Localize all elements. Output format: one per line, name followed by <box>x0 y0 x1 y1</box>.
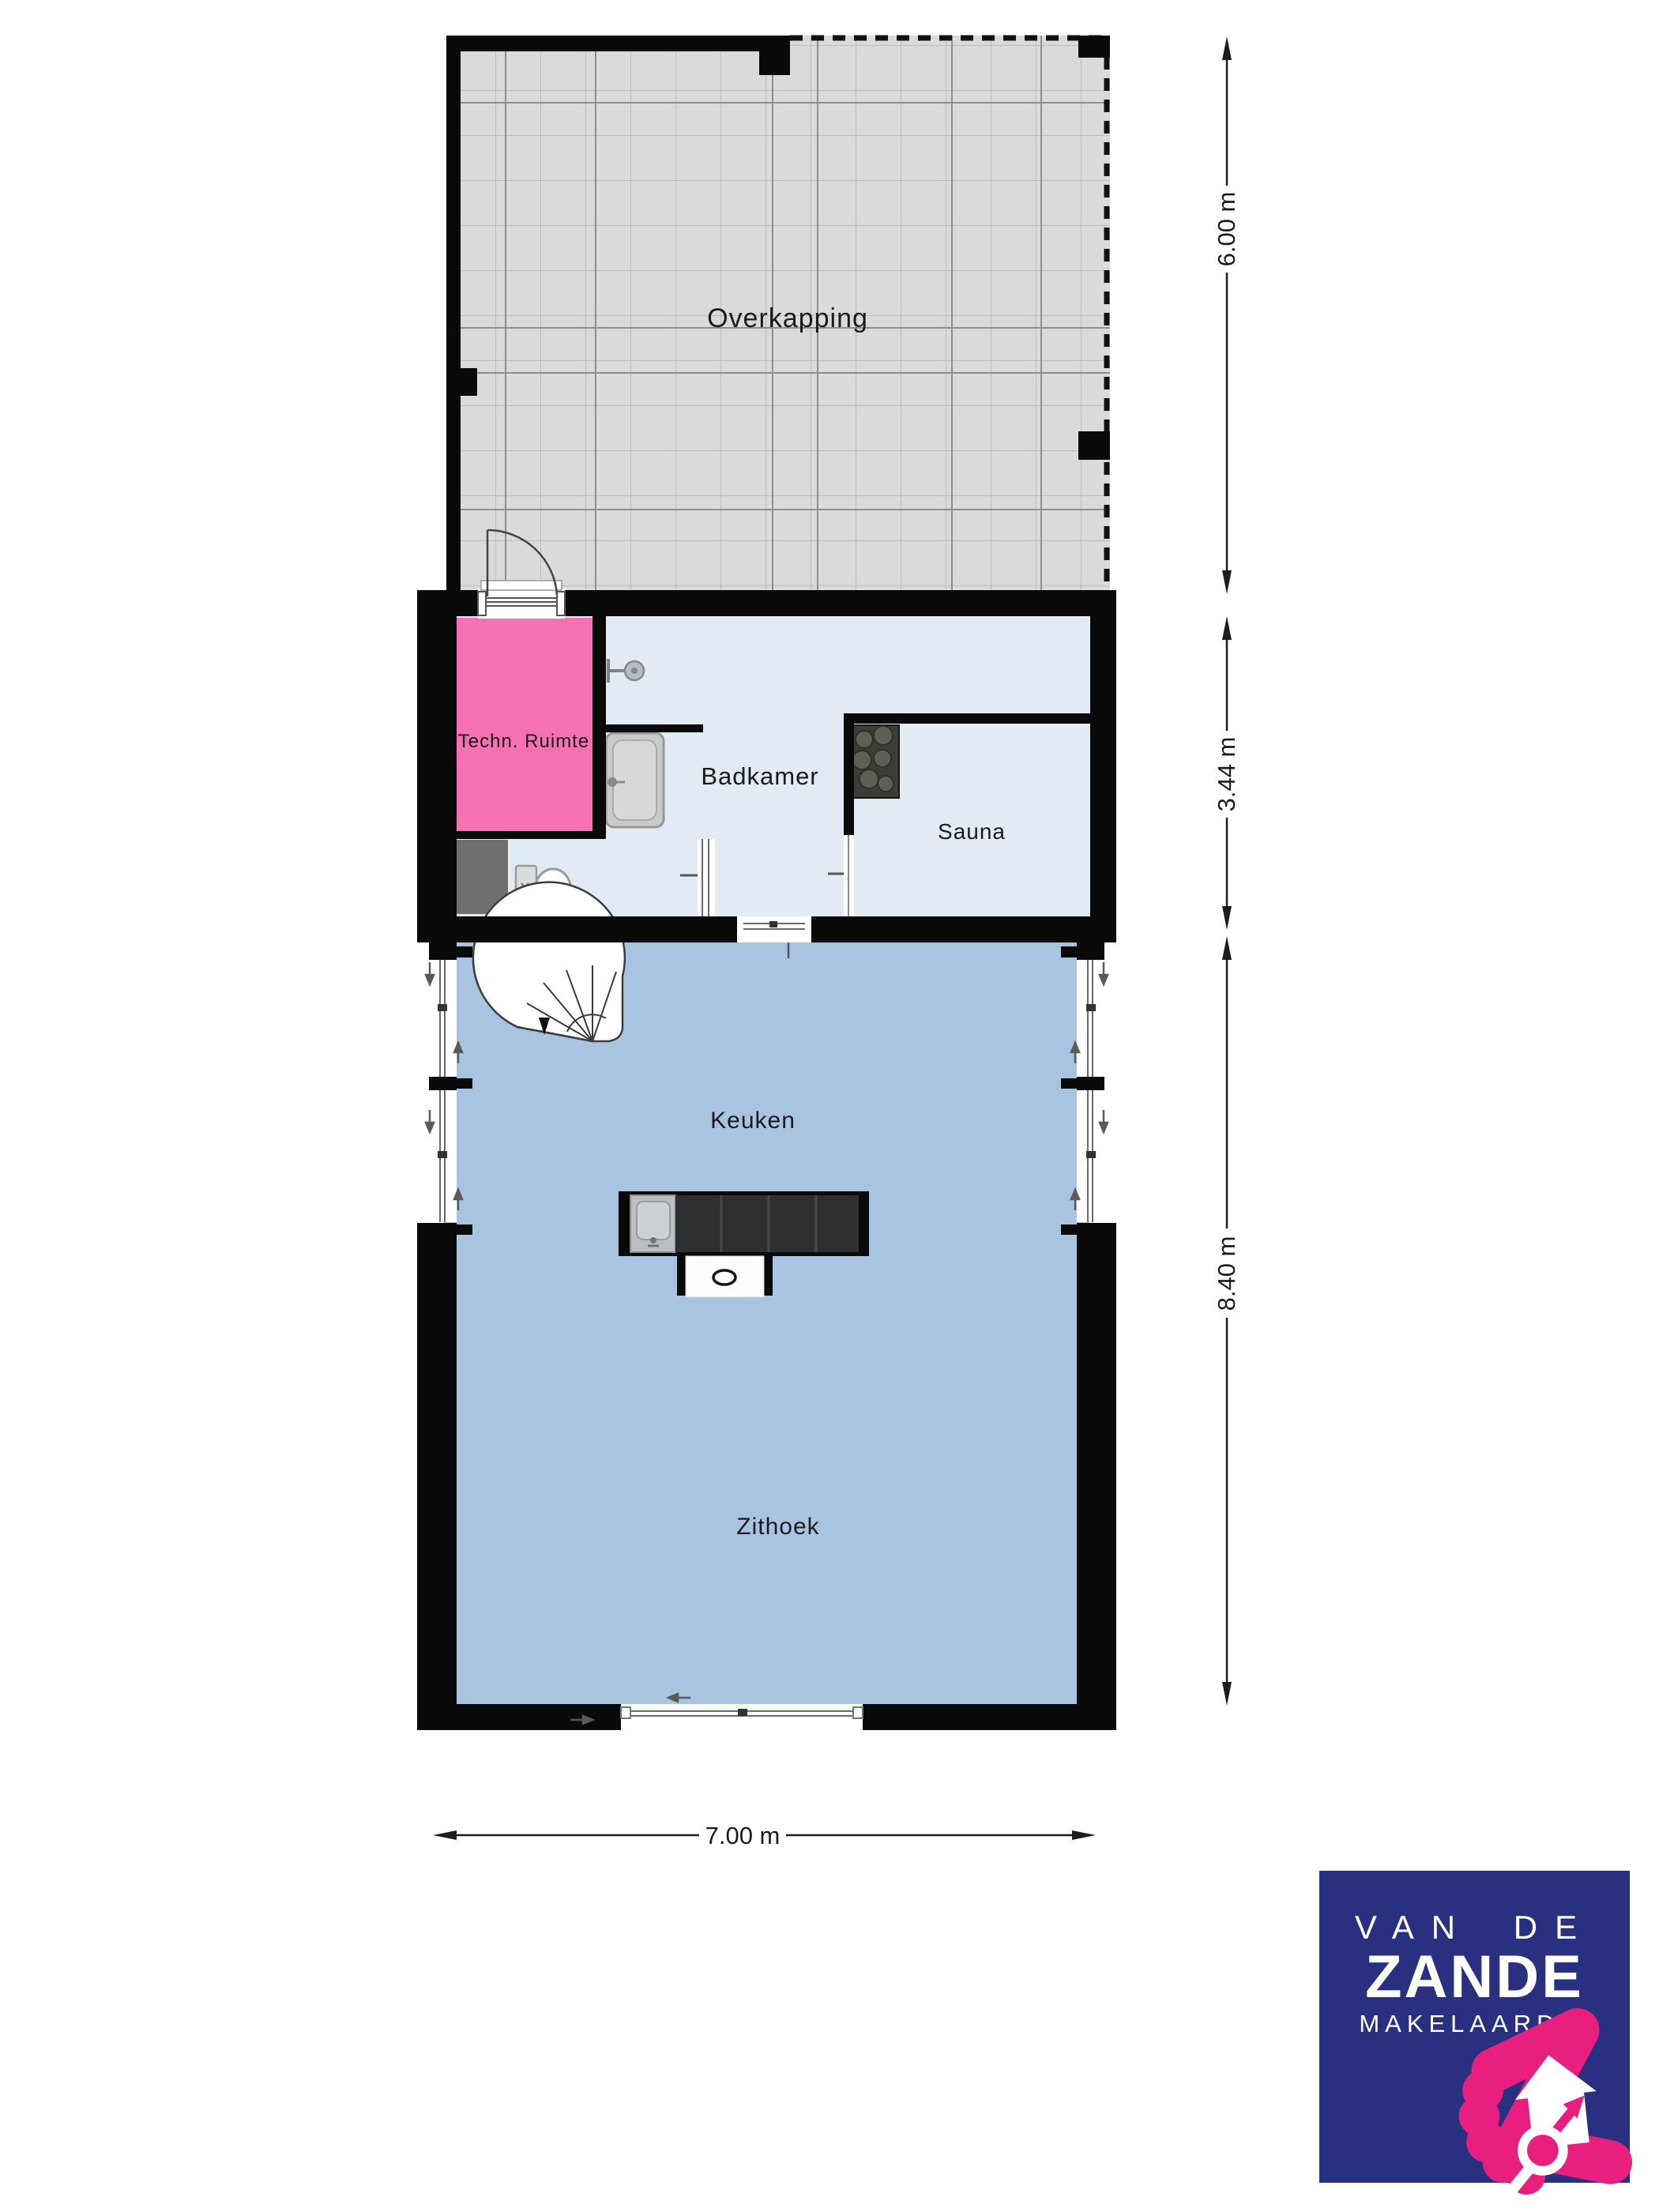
label-zithoek: Zithoek <box>736 1514 819 1540</box>
label-sauna: Sauna <box>938 819 1006 844</box>
sauna-heater <box>852 725 899 798</box>
mid-wall-right <box>811 916 1090 942</box>
overkapping-side-post <box>1078 431 1110 460</box>
overkapping-corner-post <box>1078 36 1110 58</box>
left-pier-1 <box>429 942 457 962</box>
toilet-door <box>698 839 715 916</box>
bottom-wall-right <box>863 1704 1116 1730</box>
dim-total-width: 7.00 m <box>705 1822 781 1849</box>
techn-right-wall <box>592 616 606 831</box>
bottom-wall-left <box>417 1704 621 1730</box>
overkapping-post <box>759 36 790 75</box>
logo-line-zande: ZANDE <box>1319 1948 1630 2007</box>
sliding-door-opening <box>621 1704 863 1730</box>
left-wall-lower <box>417 1223 457 1730</box>
floorplan-page: Overkapping Techn. Ruimte Badkamer Sauna… <box>0 0 1659 2212</box>
techn-bottom-wall <box>443 831 606 839</box>
label-overkapping: Overkapping <box>707 303 868 333</box>
label-badkamer: Badkamer <box>701 762 818 790</box>
overkapping-top-wall <box>446 36 790 51</box>
right-wall-lower <box>1077 1223 1116 1730</box>
left-wall-upper <box>417 616 443 942</box>
right-wall-upper <box>1090 616 1116 942</box>
sauna-top-wall <box>844 713 1090 724</box>
logo-z-hand-mark <box>1450 2001 1653 2199</box>
left-wall-inner <box>443 616 457 916</box>
overkapping-wall-post <box>461 368 477 396</box>
top-wall-right <box>563 590 1116 616</box>
overkapping-left-wall <box>446 36 461 590</box>
techn-ruimte-floor <box>457 618 592 831</box>
alcove-oval <box>713 1270 735 1285</box>
logo-line-van-de: VAN DE <box>1319 1907 1630 1948</box>
mid-wall-left <box>443 916 737 942</box>
overkapping-door-opening <box>478 589 565 619</box>
dim-living-section-depth: 8.40 m <box>1213 1236 1240 1311</box>
label-techn-ruimte: Techn. Ruimte <box>458 731 589 752</box>
right-pier-2 <box>1077 1077 1104 1090</box>
living-floor <box>443 942 1090 1704</box>
shower-stub-wall <box>606 724 703 732</box>
dim-top-section-depth: 3.44 m <box>1213 737 1240 812</box>
sink-basin <box>637 1202 670 1240</box>
bathtub <box>606 733 664 827</box>
dim-overkapping-depth: 6.00 m <box>1213 192 1240 267</box>
label-keuken: Keuken <box>710 1108 796 1134</box>
top-wall-left <box>417 590 480 616</box>
right-pier-1 <box>1077 942 1104 962</box>
sauna-left-wall <box>844 724 854 835</box>
left-pier-2 <box>429 1077 457 1090</box>
agency-logo: VAN DE ZANDE MAKELAARDIJ <box>1319 1871 1630 2183</box>
island-counter <box>675 1195 859 1252</box>
